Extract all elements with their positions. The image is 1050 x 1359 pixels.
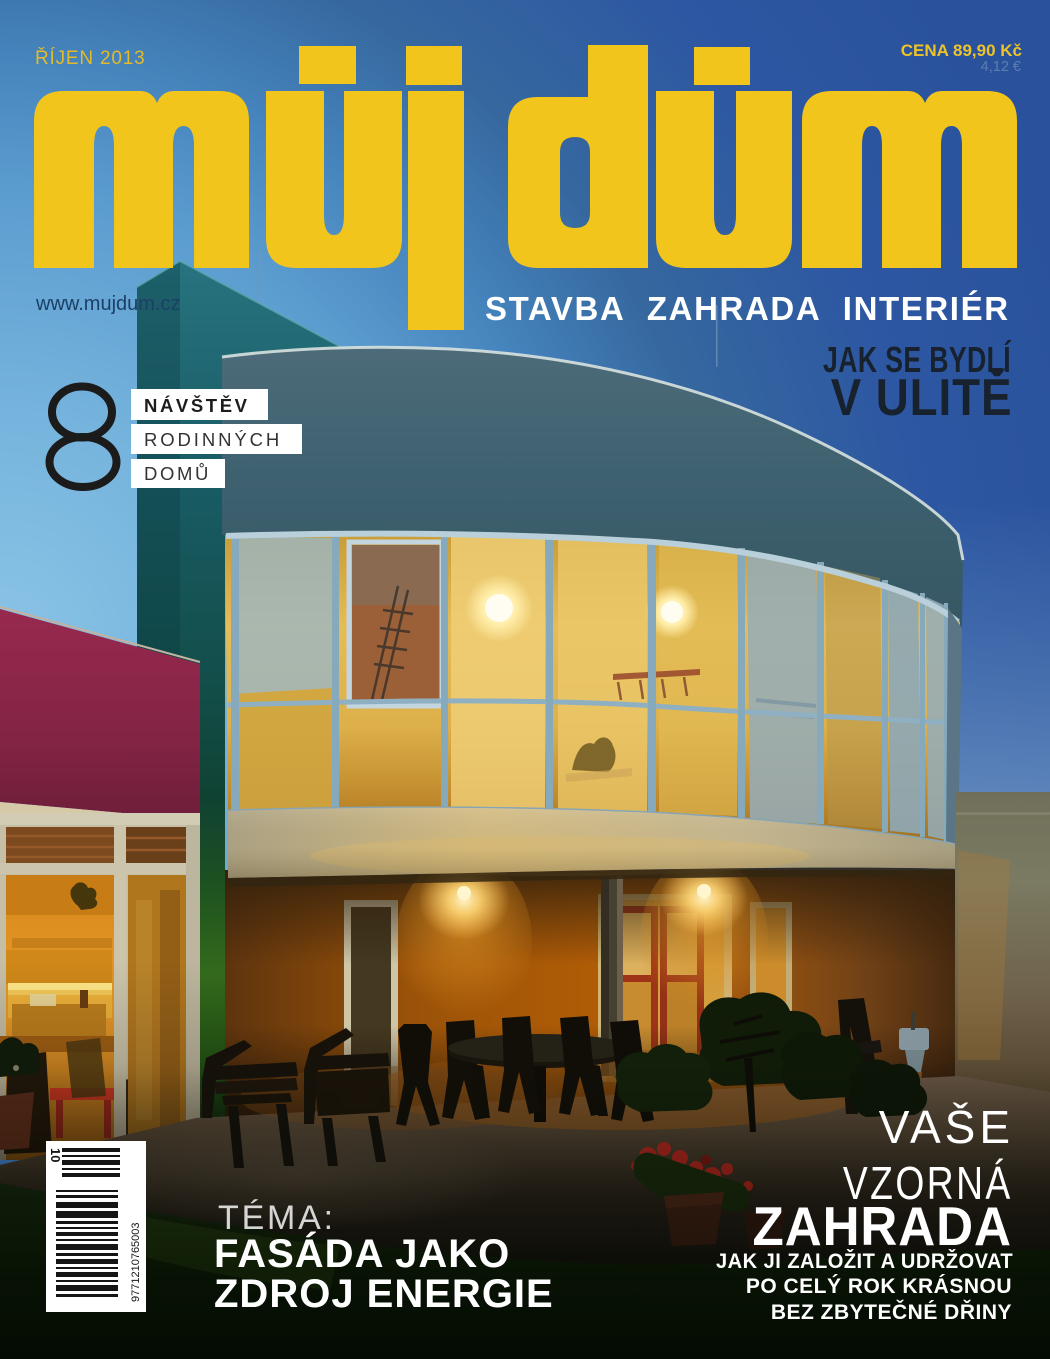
svg-text:9771210765003: 9771210765003 bbox=[130, 1222, 142, 1302]
svg-text:10: 10 bbox=[48, 1148, 63, 1162]
